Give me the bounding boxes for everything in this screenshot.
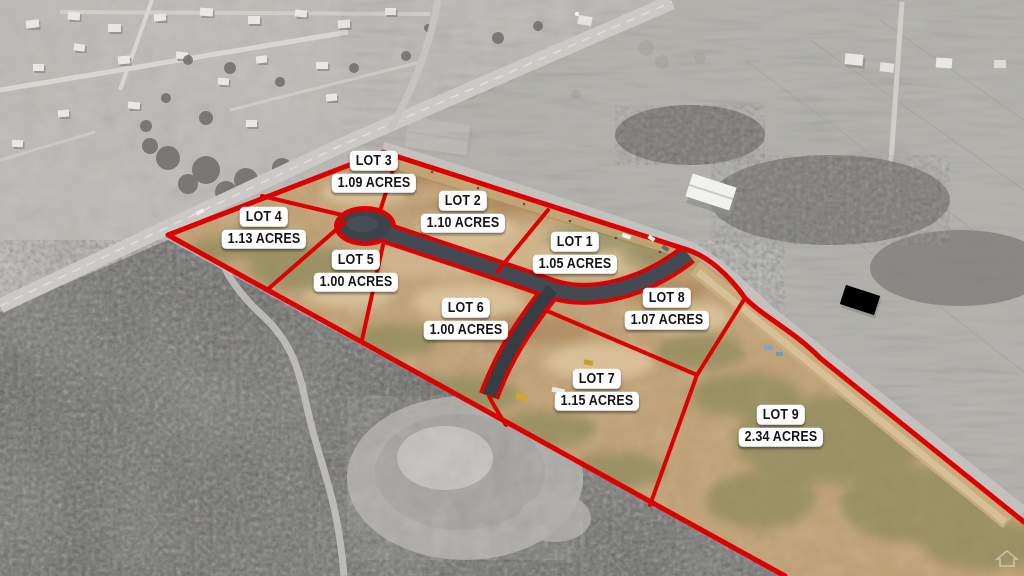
- aerial-photo: [0, 0, 1024, 576]
- aerial-subdivision-map: LOT 1 1.05 ACRES LOT 2 1.10 ACRES LOT 3 …: [0, 0, 1024, 576]
